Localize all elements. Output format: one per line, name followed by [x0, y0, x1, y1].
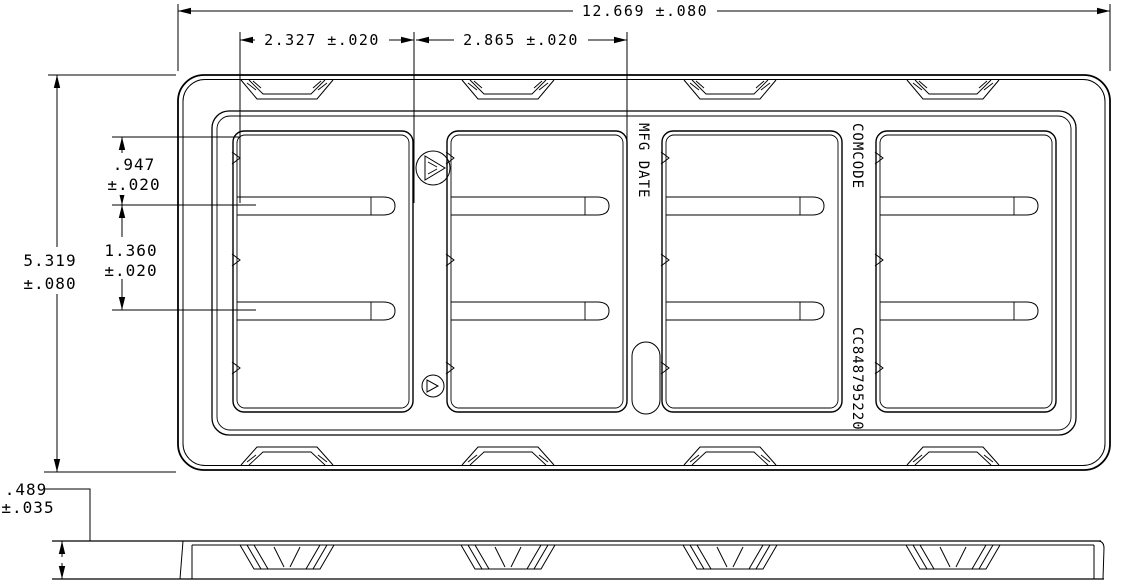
dim-pocket-offset-value: .947: [113, 155, 156, 174]
dim-thickness-tol: ±.035: [1, 498, 54, 517]
dim-pocket-offset-tol: ±.020: [107, 175, 160, 194]
dim-row-pitch-tol: ±.020: [104, 261, 157, 280]
esd-symbol-icon: [416, 151, 450, 185]
dim-overall-width-text: 12.669 ±.080: [582, 2, 708, 20]
dim-pitch-right-text: 2.865 ±.020: [463, 31, 579, 49]
dim-row-pitch-value: 1.360: [104, 241, 157, 260]
dimension-graphics: [44, 4, 1110, 579]
part-number-label: CC848795220: [849, 327, 865, 431]
dim-thickness-value: .489: [5, 480, 48, 499]
cad-drawing-sheet: MFG DATE COMCODE CC848795220: [0, 0, 1121, 583]
tray-drawing: MFG DATE COMCODE CC848795220: [0, 0, 1121, 583]
comcode-label: COMCODE: [849, 123, 865, 189]
side-view: [52, 541, 1104, 579]
dim-overall-height-tol: ±.080: [23, 274, 76, 293]
dim-overall-height-value: 5.319: [23, 251, 76, 270]
recycle-symbol-icon: [422, 375, 444, 397]
top-view: MFG DATE COMCODE CC848795220: [178, 75, 1110, 470]
mfg-date-label: MFG DATE: [635, 123, 651, 198]
dim-pitch-left-text: 2.327 ±.020: [264, 31, 380, 49]
tool-slot: [632, 342, 660, 414]
stacking-feet-section: [240, 545, 1000, 569]
